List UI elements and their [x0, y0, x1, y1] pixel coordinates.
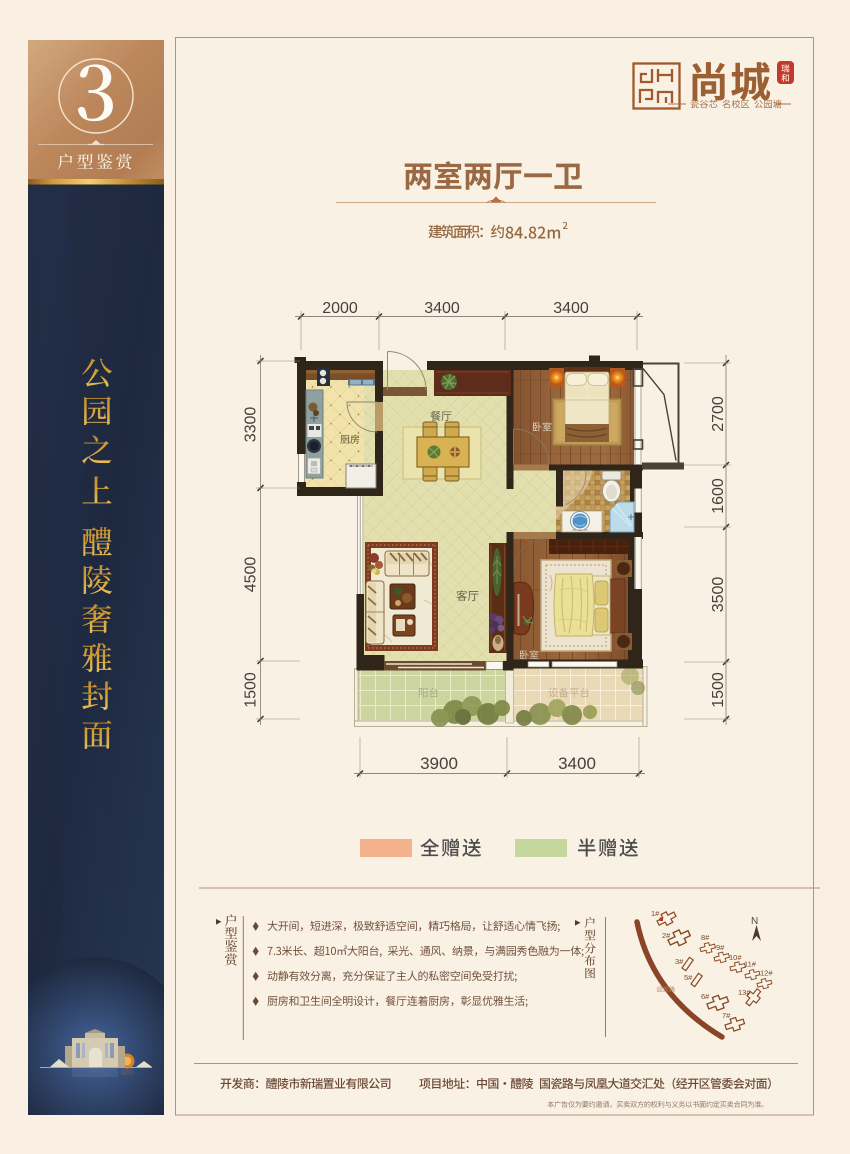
svg-text:1#: 1#: [651, 909, 660, 918]
svg-text:3500: 3500: [710, 577, 727, 613]
svg-text:1600: 1600: [710, 478, 727, 514]
svg-text:7#: 7#: [722, 1011, 731, 1020]
svg-text:2000: 2000: [322, 300, 358, 317]
svg-text:10#: 10#: [729, 953, 742, 962]
svg-text:9#: 9#: [716, 943, 725, 952]
svg-text:6#: 6#: [701, 992, 710, 1001]
svg-text:11#: 11#: [744, 960, 757, 969]
svg-text:4500: 4500: [243, 557, 260, 593]
svg-text:12#: 12#: [760, 969, 773, 978]
svg-text:3#: 3#: [675, 957, 684, 966]
svg-text:1500: 1500: [710, 672, 727, 708]
svg-text:N: N: [751, 916, 758, 927]
svg-text:3300: 3300: [243, 407, 260, 443]
svg-text:13#: 13#: [738, 988, 751, 997]
svg-text:3900: 3900: [420, 754, 458, 773]
svg-text:1500: 1500: [243, 672, 260, 708]
svg-text:3400: 3400: [558, 754, 596, 773]
svg-text:2#: 2#: [662, 931, 671, 940]
svg-text:8#: 8#: [701, 933, 710, 942]
svg-text:3400: 3400: [424, 300, 460, 317]
svg-text:3400: 3400: [553, 300, 589, 317]
svg-text:5#: 5#: [684, 973, 693, 982]
svg-text:2700: 2700: [710, 396, 727, 432]
